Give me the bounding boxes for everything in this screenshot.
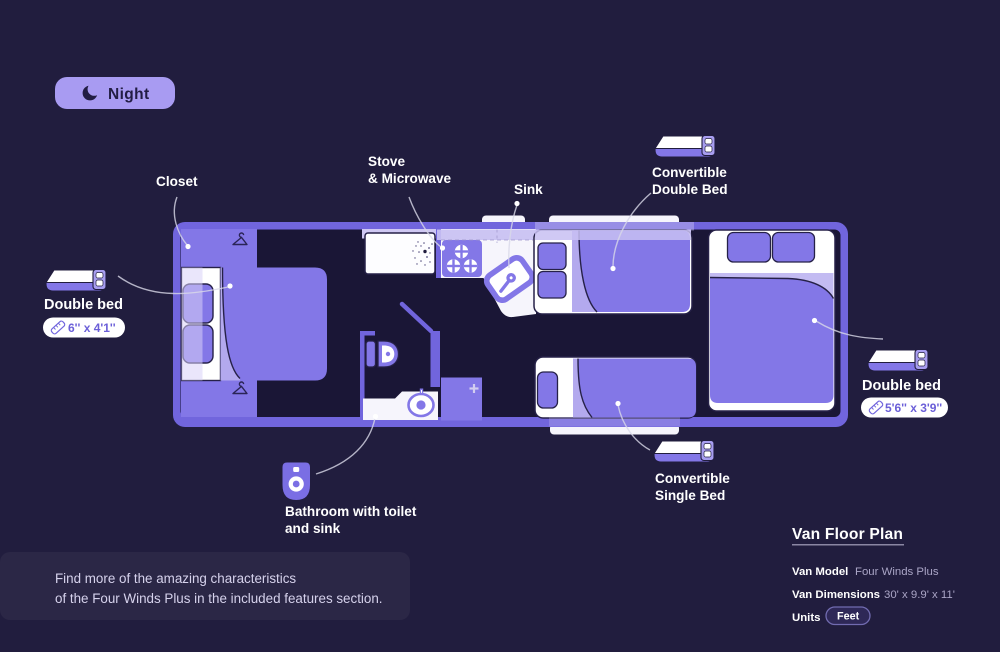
svg-text:30' x 9.9' x 11': 30' x 9.9' x 11' [884,589,955,601]
svg-text:Night: Night [108,86,150,103]
svg-text:Bathroom with toilet: Bathroom with toilet [285,504,417,519]
svg-text:Sink: Sink [514,182,543,197]
svg-text:of the Four Winds Plus in the: of the Four Winds Plus in the included f… [55,591,383,606]
svg-text:Van Floor Plan: Van Floor Plan [792,526,903,543]
svg-text:Four Winds Plus: Four Winds Plus [855,566,939,578]
svg-text:Van Dimensions: Van Dimensions [792,589,880,601]
svg-text:Closet: Closet [156,174,198,189]
svg-text:6'' x 4'1'': 6'' x 4'1'' [68,321,116,335]
svg-text:Double bed: Double bed [862,378,941,394]
svg-text:Single Bed: Single Bed [655,488,725,503]
svg-text:Double Bed: Double Bed [652,182,728,197]
svg-text:Convertible: Convertible [652,165,727,180]
svg-text:and sink: and sink [285,521,341,536]
svg-text:Find more of the amazing chara: Find more of the amazing characteristics [55,571,296,586]
svg-text:Van Model: Van Model [792,566,848,578]
svg-text:Convertible: Convertible [655,471,730,486]
svg-text:Stove: Stove [368,154,405,169]
svg-text:Units: Units [792,612,820,624]
svg-text:Feet: Feet [837,611,860,623]
svg-text:Double bed: Double bed [44,297,123,313]
svg-text:5'6'' x 3'9'': 5'6'' x 3'9'' [885,401,942,415]
svg-text:& Microwave: & Microwave [368,171,452,186]
